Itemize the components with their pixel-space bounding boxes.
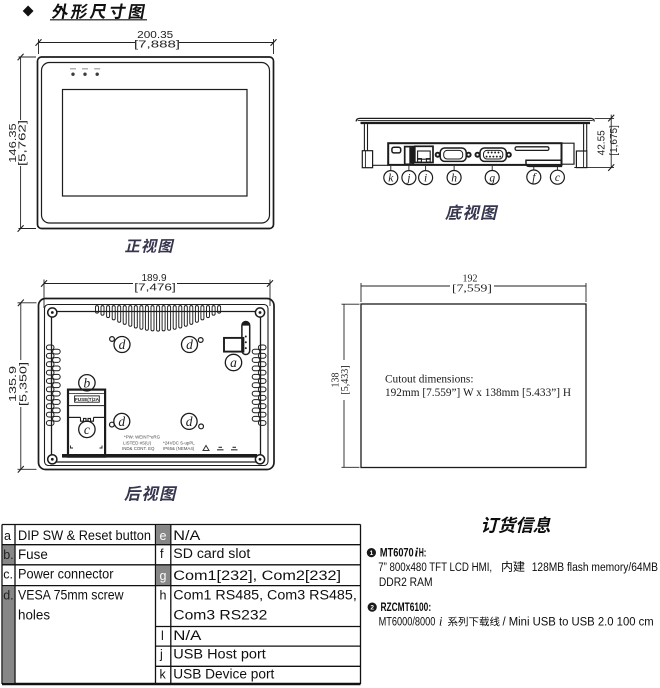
svg-text:Cutout dimensions:: Cutout dimensions:	[385, 372, 474, 386]
svg-text:c: c	[555, 172, 560, 184]
svg-text:2: 2	[370, 605, 374, 612]
svg-text:d: d	[118, 414, 125, 429]
svg-text:H:: H:	[419, 546, 426, 560]
svg-text:IP65& (NEMA4): IP65& (NEMA4)	[163, 446, 195, 451]
svg-text:Power connector: Power connector	[18, 566, 114, 581]
svg-text:*24VDC S-upPL: *24VDC S-upPL	[163, 441, 195, 446]
svg-text:Com1[232], Com2[232]: Com1[232], Com2[232]	[173, 568, 341, 583]
svg-text:Fuse: Fuse	[18, 547, 48, 562]
svg-text:e: e	[160, 529, 167, 543]
svg-text:l: l	[161, 629, 164, 643]
svg-text:7” 800x480 TFT LCD HMI,: 7” 800x480 TFT LCD HMI,	[378, 560, 492, 574]
svg-text:c.: c.	[3, 568, 13, 582]
svg-text:[5,433]: [5,433]	[340, 365, 351, 394]
svg-text:[7,476]: [7,476]	[134, 282, 176, 293]
svg-text:d: d	[186, 414, 193, 429]
svg-text:42.55: 42.55	[596, 130, 607, 155]
svg-text:b: b	[84, 376, 91, 391]
svg-text:RZCMT6100:: RZCMT6100:	[381, 600, 432, 614]
svg-text:[7,559]: [7,559]	[452, 284, 492, 295]
svg-text:Com3 RS232: Com3 RS232	[173, 607, 267, 622]
svg-text:holes: holes	[18, 607, 50, 622]
svg-text:d: d	[186, 337, 193, 352]
svg-text:d.: d.	[3, 589, 13, 603]
svg-text:*PW: WEINT*eRG: *PW: WEINT*eRG	[124, 435, 161, 440]
svg-text:b.: b.	[3, 548, 13, 562]
svg-text:VESA 75mm screw: VESA 75mm screw	[18, 587, 124, 602]
svg-text:DIP SW & Reset button: DIP SW & Reset button	[18, 528, 151, 543]
svg-text:Com1 RS485, Com3 RS485,: Com1 RS485, Com3 RS485,	[173, 587, 356, 602]
svg-text:[1,675]: [1,675]	[609, 125, 620, 156]
svg-text:i: i	[424, 173, 427, 185]
svg-text:N/A: N/A	[173, 628, 201, 643]
svg-text:d: d	[119, 337, 126, 352]
svg-text:LISTED #S(U): LISTED #S(U)	[123, 441, 152, 446]
svg-text:g: g	[489, 173, 495, 185]
svg-text:128MB flash memory/64MB: 128MB flash memory/64MB	[532, 560, 658, 574]
svg-text:USB Host port: USB Host port	[173, 646, 266, 661]
svg-text:h: h	[160, 588, 167, 602]
svg-text:MT6070: MT6070	[380, 546, 414, 560]
svg-text:[5,350]: [5,350]	[18, 362, 29, 406]
svg-text:j: j	[159, 647, 163, 661]
svg-text:a: a	[4, 529, 11, 543]
svg-text:g: g	[160, 569, 167, 583]
svg-text:SD card slot: SD card slot	[173, 546, 250, 561]
svg-text:c: c	[84, 422, 90, 437]
svg-text:1: 1	[370, 550, 374, 557]
svg-text:MT6000/8000: MT6000/8000	[379, 614, 436, 628]
svg-text:k: k	[388, 173, 394, 185]
svg-text:192mm [7.559”] W x 138mm [5.43: 192mm [7.559”] W x 138mm [5.433”] H	[385, 385, 571, 399]
svg-text:IND& CONT. EQ: IND& CONT. EQ	[122, 446, 155, 451]
svg-text:/ Mini USB to USB 2.0 100 cm: / Mini USB to USB 2.0 100 cm	[503, 614, 654, 628]
svg-text:f: f	[160, 547, 164, 561]
svg-text:i: i	[439, 613, 443, 628]
svg-text:k: k	[160, 668, 167, 682]
svg-text:h: h	[451, 173, 457, 185]
svg-text:USB Device port: USB Device port	[173, 667, 274, 682]
svg-text:a: a	[230, 355, 237, 370]
svg-text:FUSE(T)2A: FUSE(T)2A	[75, 397, 100, 402]
svg-text:N/A: N/A	[173, 528, 200, 543]
svg-text:[5,762]: [5,762]	[18, 120, 29, 166]
svg-text:[7,888]: [7,888]	[134, 40, 180, 51]
svg-text:DDR2 RAM: DDR2 RAM	[379, 575, 433, 589]
